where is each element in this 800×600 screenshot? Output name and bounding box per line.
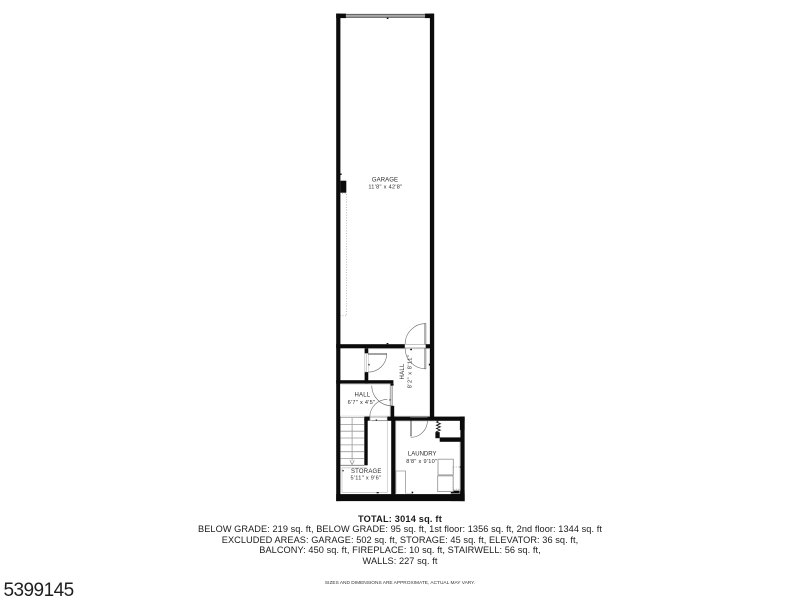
svg-text:STORAGE: STORAGE [351,469,382,475]
svg-text:GARAGE: GARAGE [372,178,398,184]
svg-text:6'7" x 4'5": 6'7" x 4'5" [348,400,376,406]
svg-text:5'11" x 9'6": 5'11" x 9'6" [351,476,382,482]
svg-text:LAUNDRY: LAUNDRY [408,452,437,458]
svg-text:11'8" x 42'8": 11'8" x 42'8" [368,185,402,191]
svg-text:HALL: HALL [400,363,406,380]
svg-text:8'8" x 9'10": 8'8" x 9'10" [406,459,437,465]
svg-text:HALL: HALL [354,393,370,399]
svg-text:8'2" x 8'11": 8'2" x 8'11" [408,355,414,389]
